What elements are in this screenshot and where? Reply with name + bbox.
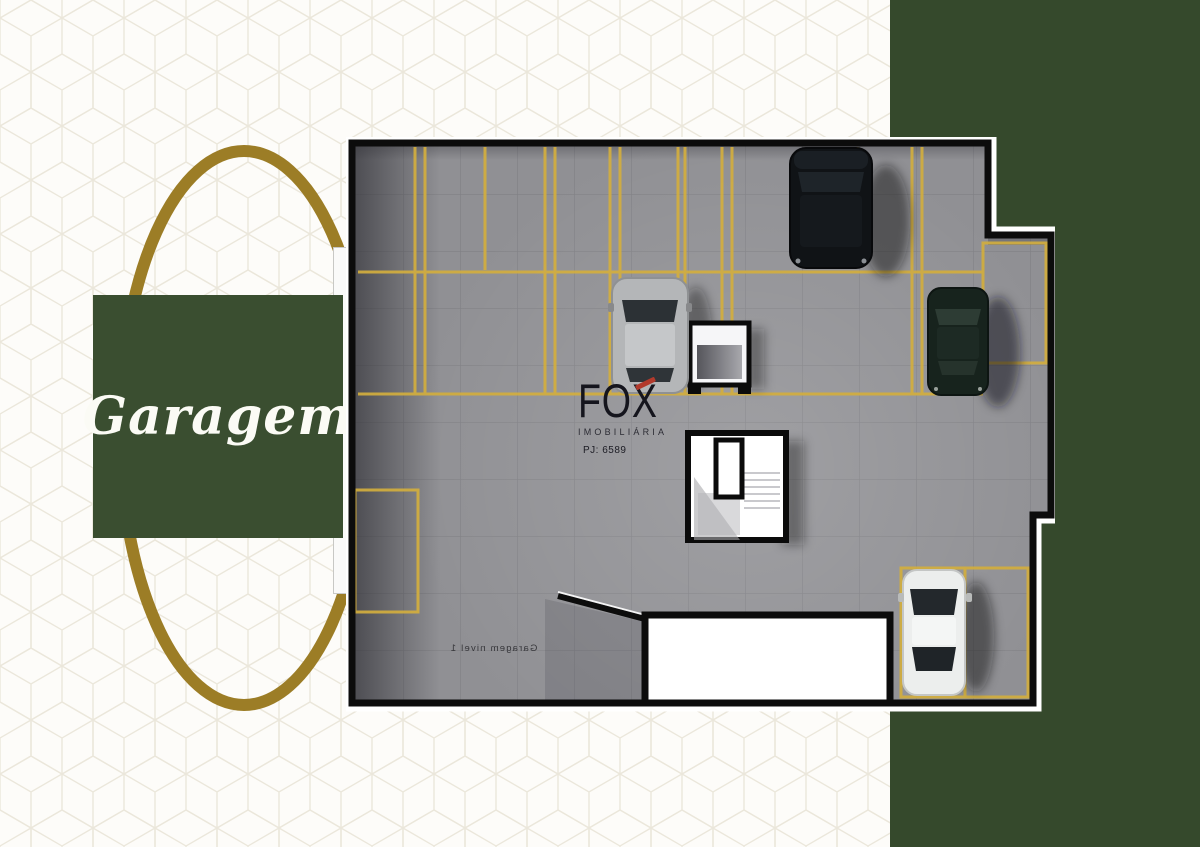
floor-plan-drawing bbox=[346, 137, 1055, 717]
left-wall-shadow bbox=[352, 143, 440, 703]
brand-subtitle: IMOBILIÁRIA bbox=[578, 427, 698, 437]
brand-wordmark: FOX bbox=[578, 377, 674, 424]
watermark-logo: FOX IMOBILIÁRIA PJ: 6589 bbox=[578, 377, 698, 456]
brand-registration: PJ: 6589 bbox=[583, 445, 698, 456]
floor-level-label: Garagem nivel 1 bbox=[441, 643, 546, 654]
garage-entrance bbox=[645, 615, 890, 703]
car-black-suv bbox=[790, 148, 872, 268]
car-white bbox=[898, 570, 972, 695]
stairwell bbox=[688, 433, 786, 540]
title-card: Garagem bbox=[93, 295, 343, 538]
page: Garagem bbox=[0, 0, 1200, 847]
garage-floor-plan: FOX IMOBILIÁRIA PJ: 6589 Garagem nivel 1 bbox=[346, 137, 1055, 717]
car-dark-green-sedan bbox=[928, 288, 988, 395]
page-title: Garagem bbox=[83, 386, 354, 447]
